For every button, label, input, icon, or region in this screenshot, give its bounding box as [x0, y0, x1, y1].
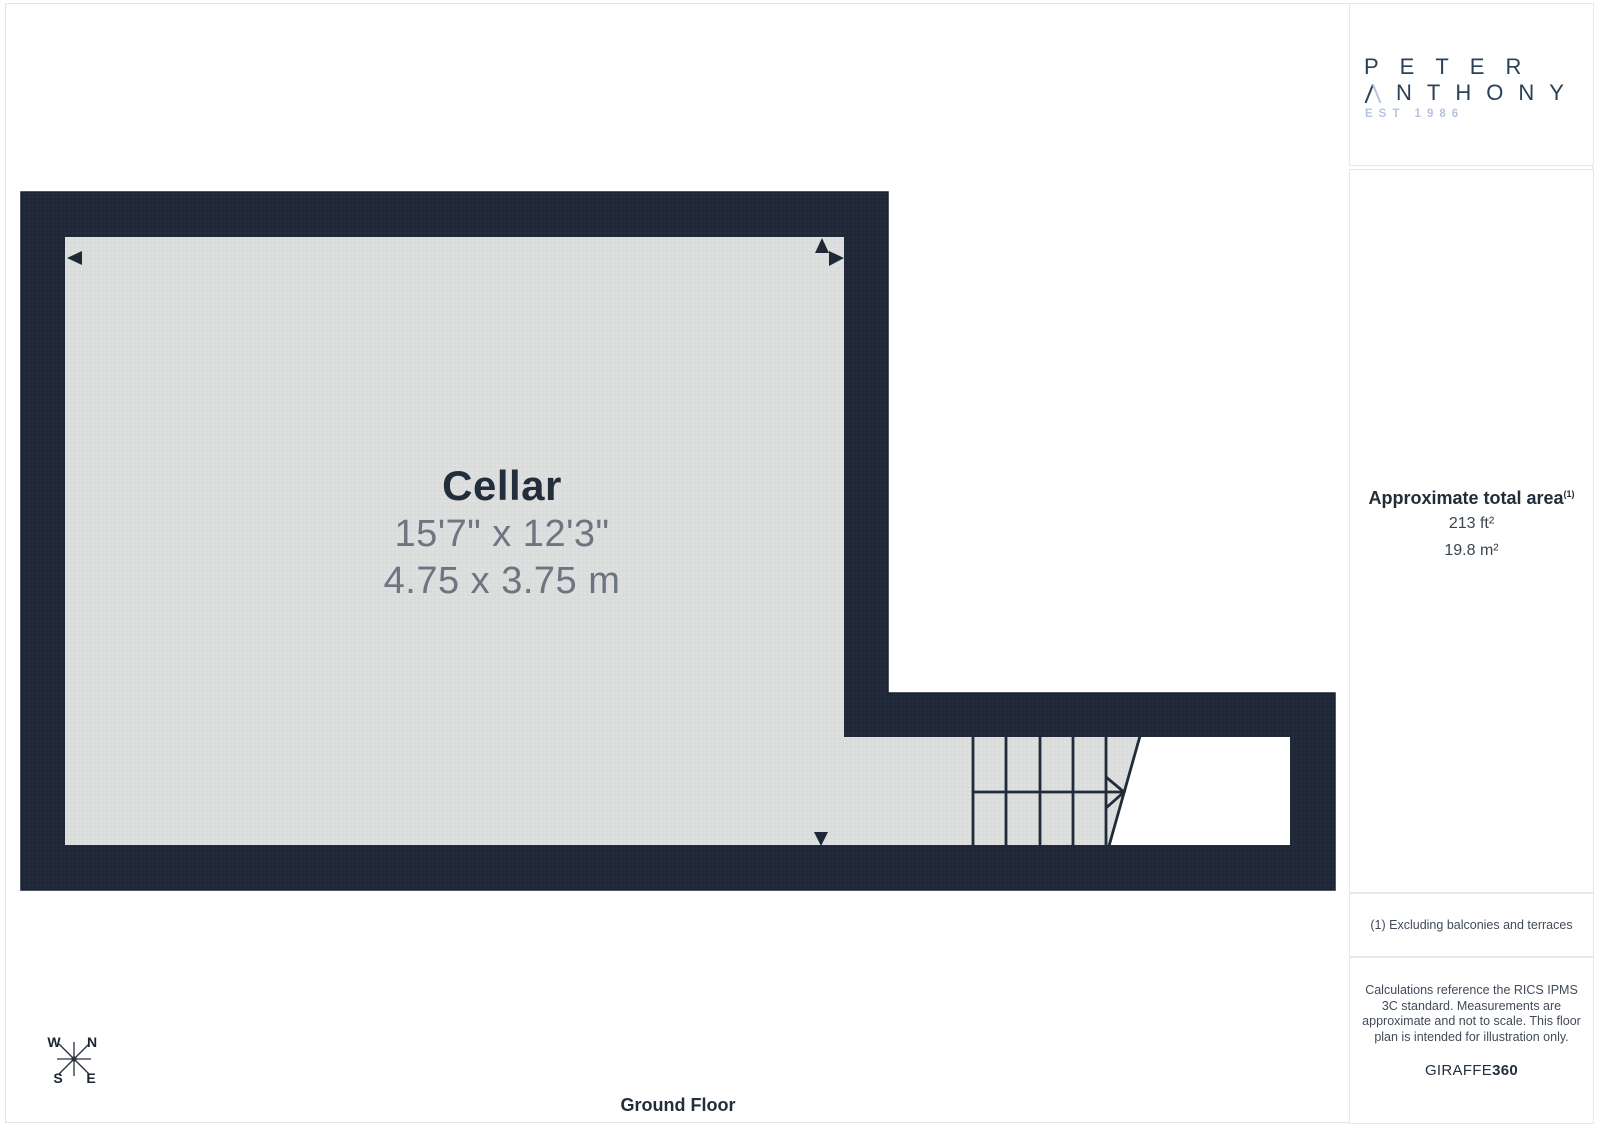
room-dimensions-imperial: 15'7" x 12'3" — [342, 511, 662, 558]
disclaimer-text: Calculations reference the RICS IPMS 3C … — [1358, 983, 1586, 1045]
compass-west-label: W — [47, 1035, 60, 1049]
sidebar-footnote-box: (1) Excluding balconies and terraces — [1349, 893, 1594, 957]
area-footnote-marker: (1) — [1564, 489, 1575, 499]
footnote-text: (1) Excluding balconies and terraces — [1370, 918, 1572, 932]
sidebar-area-box: Approximate total area(1) 213 ft² 19.8 m… — [1349, 169, 1594, 893]
brand-name-line2-rest: NTHONY — [1396, 82, 1579, 104]
compass-north-label: N — [87, 1035, 97, 1049]
area-heading: Approximate total area(1) — [1350, 484, 1593, 508]
brand-name-line1: PETER — [1364, 56, 1542, 78]
credit-suffix: 360 — [1492, 1062, 1518, 1079]
room-label: Cellar 15'7" x 12'3" 4.75 x 3.75 m — [342, 461, 662, 605]
compass-east-label: E — [86, 1071, 95, 1085]
area-heading-text: Approximate total area — [1368, 488, 1563, 508]
floorplan-page: Cellar 15'7" x 12'3" 4.75 x 3.75 m W N S… — [0, 0, 1600, 1131]
floor-name-label: Ground Floor — [578, 1095, 778, 1116]
credit-brand: GIRAFFE360 — [1350, 1062, 1593, 1079]
compass-south-label: S — [53, 1071, 62, 1085]
brand-name-line2: NTHONY — [1364, 82, 1579, 104]
area-summary: Approximate total area(1) 213 ft² 19.8 m… — [1350, 484, 1593, 562]
room-name: Cellar — [342, 461, 662, 511]
area-value-imperial: 213 ft² — [1350, 512, 1593, 535]
sidebar-logo-box: PETER NTHONY EST 1986 — [1349, 3, 1594, 166]
credit-name: GIRAFFE — [1425, 1062, 1492, 1079]
logo-lambda-icon — [1364, 83, 1381, 104]
brand-established-label: EST 1986 — [1365, 108, 1464, 120]
room-dimensions-metric: 4.75 x 3.75 m — [342, 558, 662, 605]
area-value-metric: 19.8 m² — [1350, 539, 1593, 562]
sidebar-disclaimer-box: Calculations reference the RICS IPMS 3C … — [1349, 957, 1594, 1124]
